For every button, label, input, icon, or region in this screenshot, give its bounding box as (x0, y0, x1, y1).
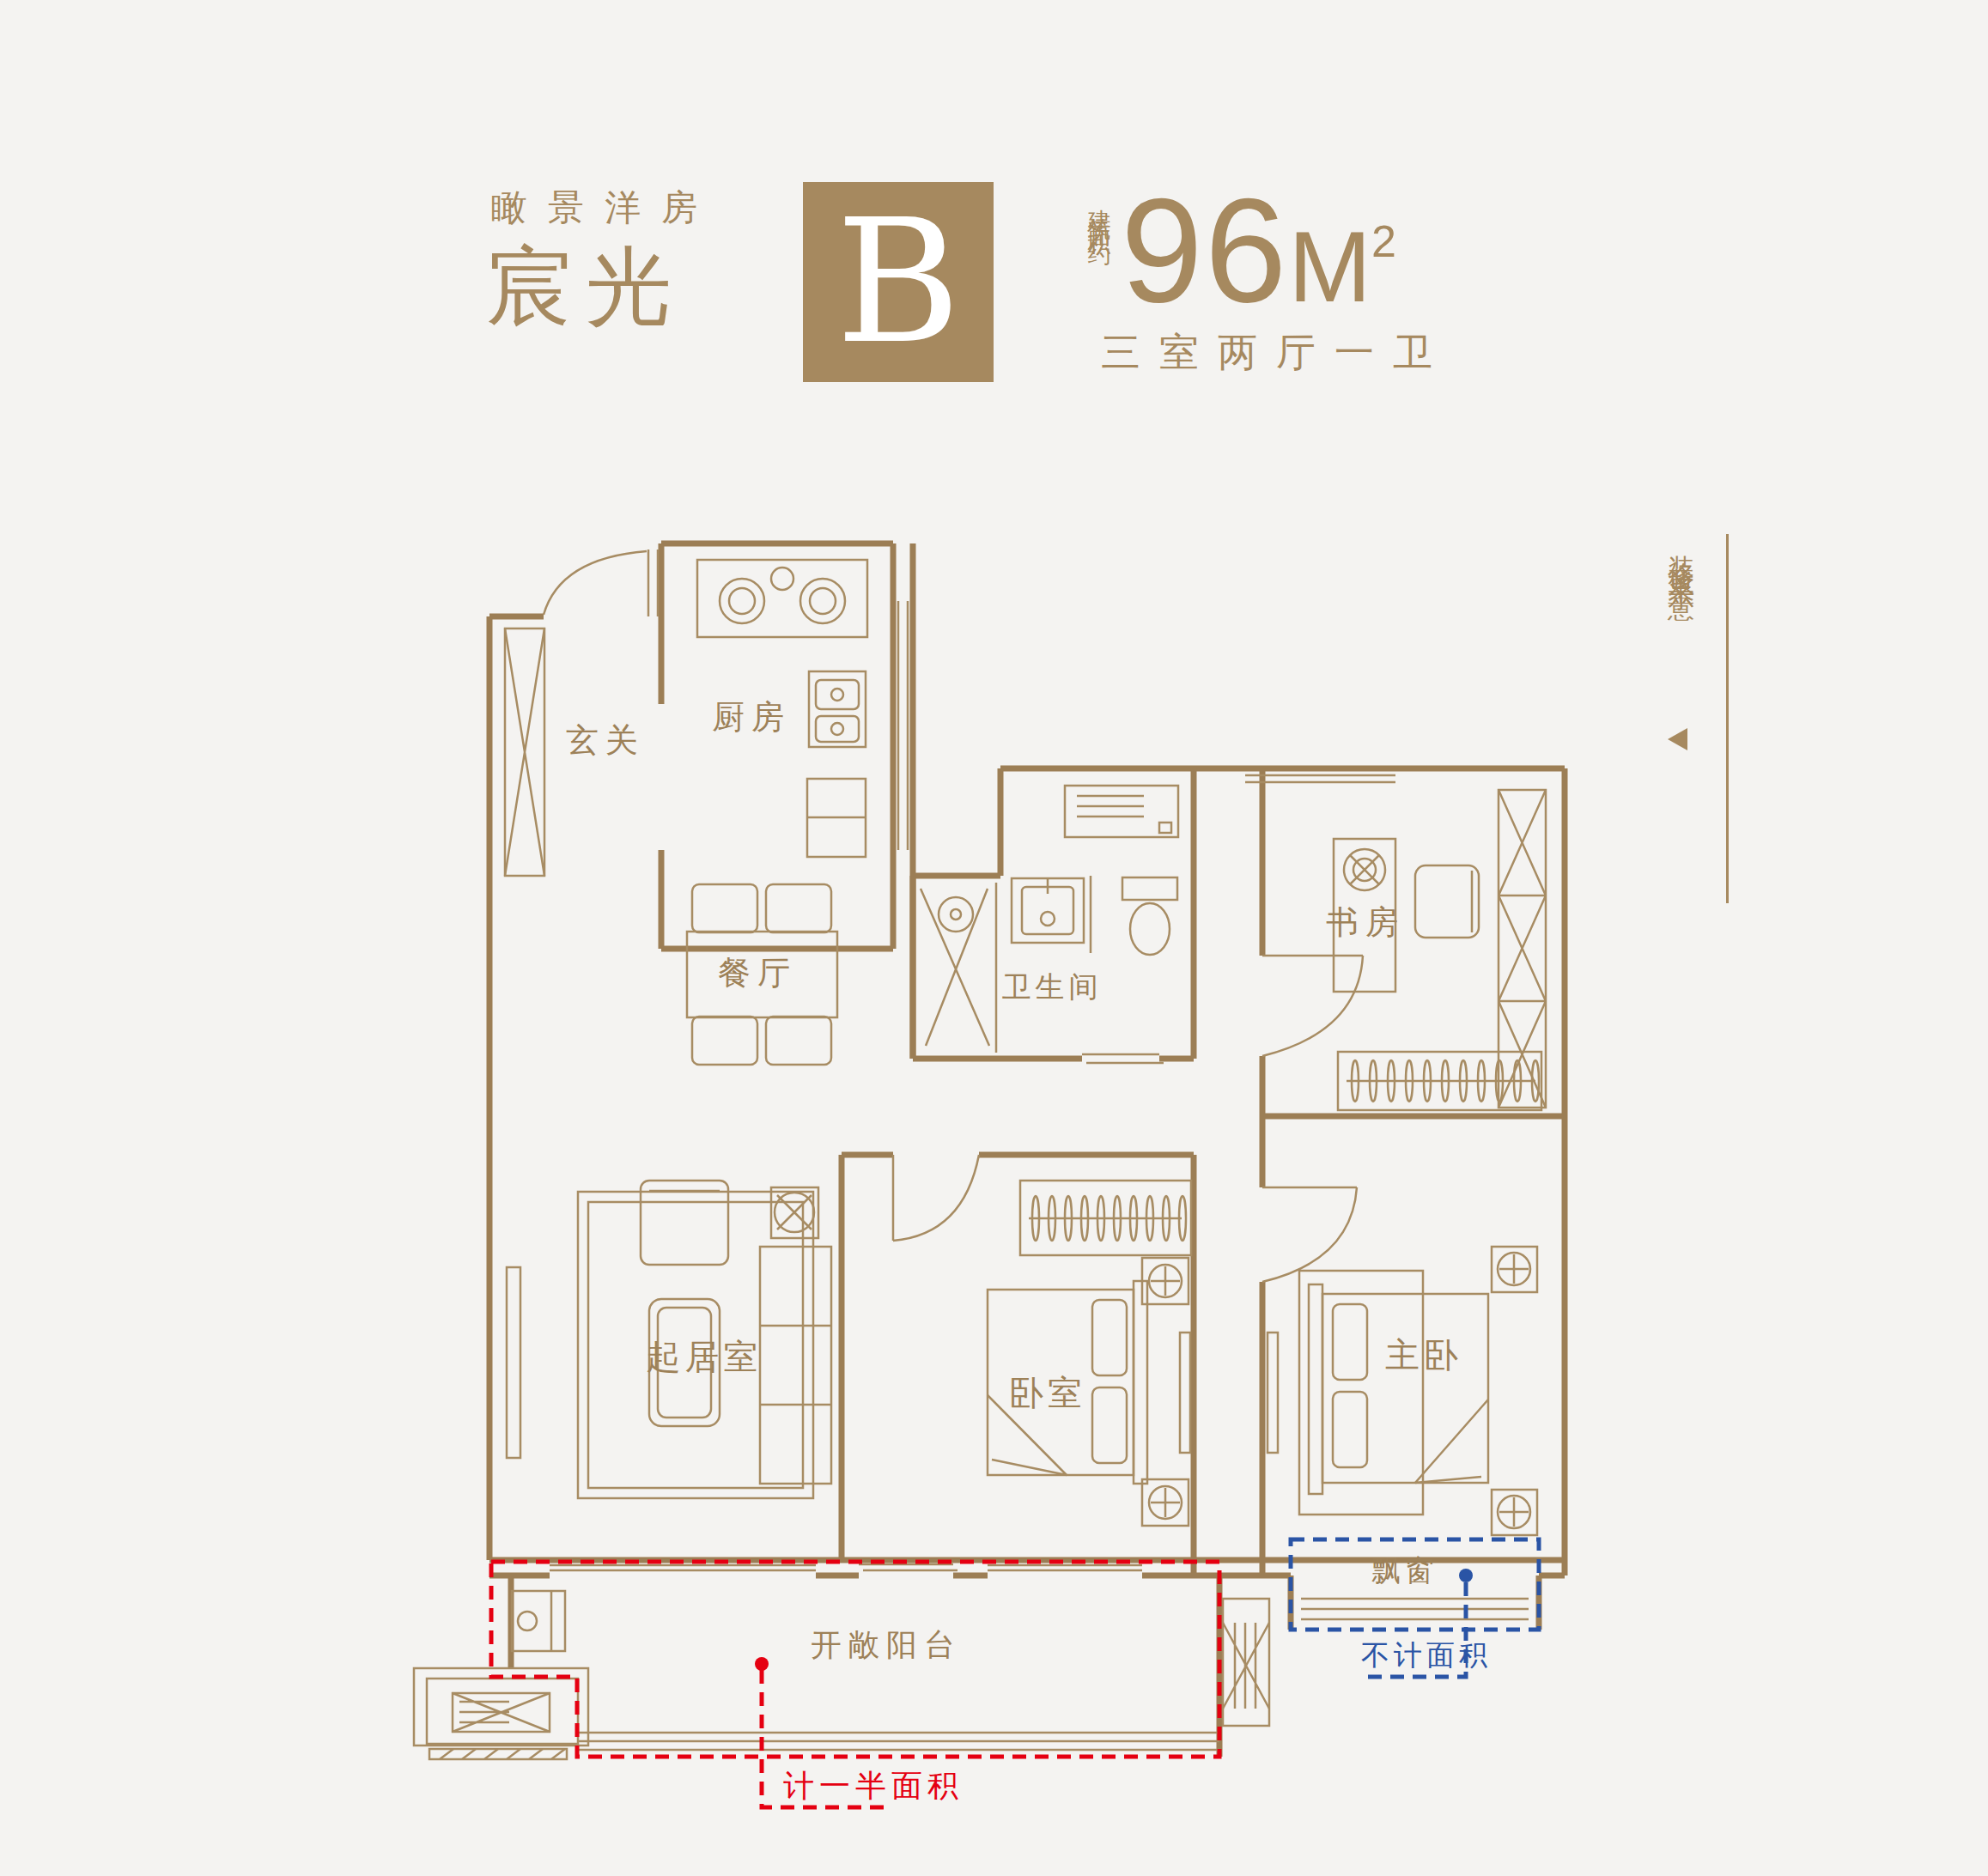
study-closet (1338, 1052, 1541, 1110)
bathroom-fixtures (921, 877, 1177, 1046)
master-furniture (1268, 1247, 1537, 1535)
doors (544, 549, 1363, 1282)
room-label-bay: 飘窗 (1371, 1551, 1438, 1591)
study-furniture (1334, 790, 1546, 1108)
room-label-entry: 玄关 (566, 719, 645, 762)
room-label-living: 起居室 (647, 1333, 763, 1381)
room-label-master: 主卧 (1385, 1332, 1462, 1379)
floorplan-page: 瞰景洋房 宸光 B 建筑面积约 96M2 三室两厅一卫 装修效果示意 (0, 0, 1988, 1876)
half-area-label: 计一半面积 (783, 1765, 964, 1807)
room-label-dining: 餐厅 (718, 951, 797, 995)
bedroom-closet (1020, 1181, 1191, 1255)
room-label-bedroom: 卧室 (1009, 1369, 1086, 1417)
room-label-study: 书房 (1326, 901, 1405, 944)
excluded-area-label: 不计面积 (1361, 1636, 1492, 1675)
room-label-bathroom: 卫生间 (1002, 968, 1103, 1007)
room-label-balcony: 开敞阳台 (811, 1624, 962, 1667)
entry-closet (505, 628, 544, 876)
floorplan-svg (0, 0, 1988, 1876)
utility-cabinet (1065, 786, 1178, 837)
room-label-kitchen: 厨房 (712, 695, 791, 739)
